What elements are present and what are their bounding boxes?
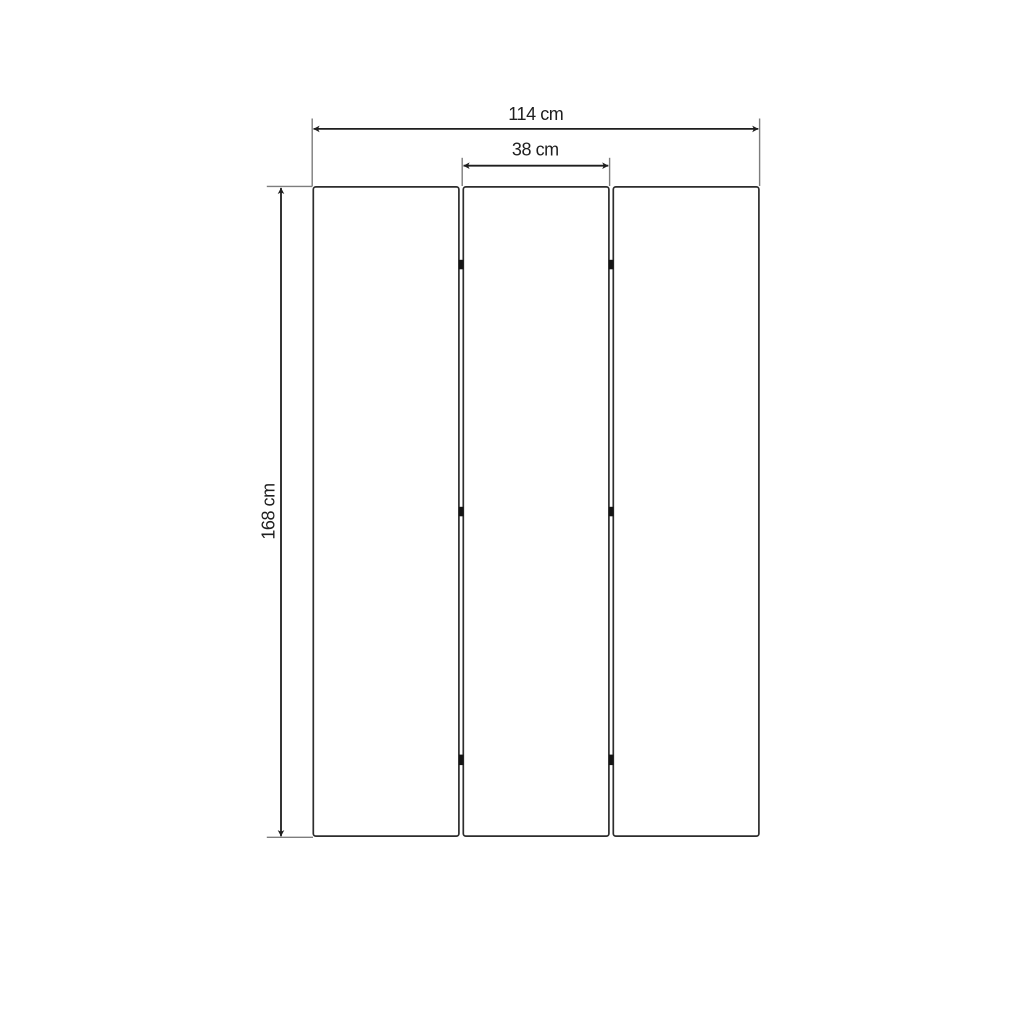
svg-text:168 cm: 168 cm [259, 483, 279, 539]
svg-text:38 cm: 38 cm [512, 140, 559, 160]
svg-text:114 cm: 114 cm [508, 104, 563, 124]
